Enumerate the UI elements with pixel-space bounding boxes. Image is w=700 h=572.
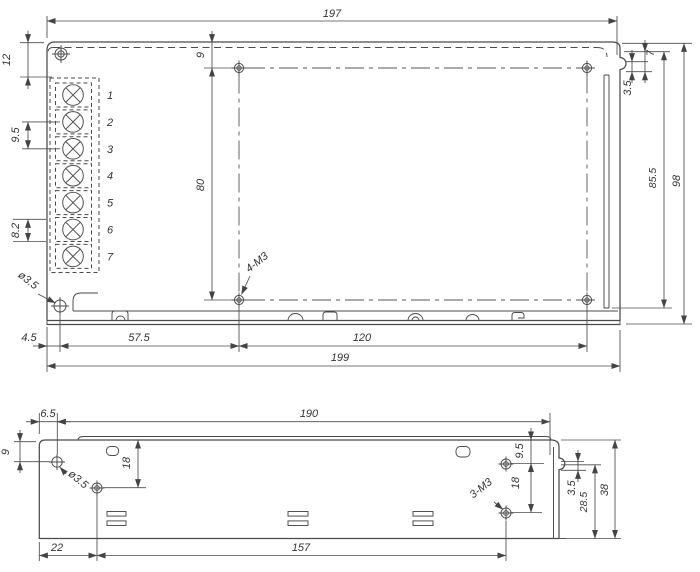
- dim-hole-dia: ø3.5: [15, 269, 55, 303]
- dim-label-8point2: 8.2: [10, 223, 22, 238]
- dim-4-m3: 4-M3: [242, 250, 272, 295]
- dim-9point5: 9.5: [10, 122, 60, 149]
- dim-9: 9: [195, 31, 212, 68]
- side-hole-m3: [499, 457, 514, 472]
- terminal-6: [56, 218, 92, 242]
- dim-12: 12: [1, 31, 52, 89]
- terminal-7: [56, 244, 92, 268]
- terminal-4: [56, 164, 92, 188]
- cover-dashed-line: [48, 48, 607, 58]
- dim-label-28point5: 28.5: [578, 492, 590, 514]
- dim-label-18-left: 18: [121, 456, 133, 469]
- dim-190: 190: [57, 408, 550, 455]
- dim-3-m3: 3-M3: [468, 476, 503, 510]
- dim-label-9point5-side: 9.5: [514, 442, 526, 458]
- dim-label-9-side: 9: [0, 449, 12, 455]
- vent-slots: [107, 512, 433, 526]
- terminal-number-3: 3: [107, 144, 114, 156]
- dim-label-4-m3: 4-M3: [244, 250, 272, 275]
- mounting-hole-m3: [232, 61, 247, 76]
- terminal-number-2: 2: [106, 117, 113, 129]
- dim-label-18-right: 18: [510, 476, 522, 489]
- dim-9-side: 9: [0, 430, 50, 473]
- dim-9point5-side: 9.5: [511, 428, 544, 475]
- dim-label-4point5: 4.5: [21, 332, 37, 344]
- dim-label-85point5: 85.5: [647, 168, 659, 189]
- terminal-numbers: 1 2 3 4 5 6 7: [106, 90, 114, 263]
- dim-label-3point5-top: 3.5: [622, 79, 634, 95]
- dim-label-98: 98: [671, 174, 683, 187]
- top-view: 1 2 3 4 5 6 7: [1, 8, 692, 372]
- dim-6point5: 6.5: [26, 408, 71, 454]
- dim-label-190: 190: [300, 408, 319, 420]
- dim-label-3-m3: 3-M3: [468, 476, 496, 501]
- technical-drawing-page: 1 2 3 4 5 6 7: [0, 0, 700, 572]
- dim-label-7: 7: [645, 49, 657, 56]
- mounting-hole-m3: [580, 293, 595, 308]
- terminal-number-4: 4: [107, 171, 113, 183]
- terminal-1: [56, 83, 92, 107]
- dim-80: 80: [195, 68, 232, 300]
- dim-3point5-top: 3.5: [622, 50, 634, 96]
- mounting-hole-m3: [232, 293, 247, 308]
- dim-label-12: 12: [1, 54, 13, 66]
- mounting-hole-m3: [580, 61, 595, 76]
- enclosure-outline: [47, 42, 626, 325]
- dim-label-hole-dia: ø3.5: [15, 269, 40, 293]
- dim-4point5: 4.5: [21, 313, 60, 372]
- dim-label-6point5: 6.5: [40, 408, 56, 420]
- dim-57point5: 57.5: [60, 307, 239, 352]
- dim-38: 38: [599, 440, 615, 539]
- terminal-number-7: 7: [107, 251, 114, 263]
- dim-label-197: 197: [323, 8, 342, 20]
- dim-85point5: 85.5: [647, 52, 664, 308]
- dim-22: 22: [39, 494, 97, 561]
- dim-label-38: 38: [599, 483, 611, 496]
- dim-98: 98: [671, 43, 684, 324]
- dim-label-120: 120: [353, 332, 372, 344]
- dim-label-hole-dia-side: ø3.5: [66, 468, 91, 492]
- terminal-2: [56, 110, 92, 134]
- dim-18-left: 18: [103, 440, 146, 488]
- side-hole-3point5: [49, 454, 65, 470]
- terminal-5: [56, 191, 92, 215]
- dim-label-3point5-side: 3.5: [566, 479, 578, 495]
- terminal-number-5: 5: [107, 198, 114, 210]
- dim-8point2: 8.2: [10, 219, 46, 241]
- terminal-number-1: 1: [107, 90, 113, 102]
- terminal-number-6: 6: [107, 225, 114, 237]
- corner-hole-bottom-left: [51, 297, 69, 315]
- enclosure-drawing: 1 2 3 4 5 6 7: [0, 0, 700, 572]
- dim-28point5: 28.5: [578, 465, 595, 539]
- terminal-3: [56, 137, 92, 161]
- dim-label-22: 22: [50, 542, 63, 554]
- dim-157: 157: [97, 521, 506, 561]
- dim-label-199: 199: [331, 352, 349, 364]
- dim-label-9point5: 9.5: [10, 126, 22, 142]
- side-hole-m3: [90, 481, 105, 496]
- terminal-block: [50, 78, 99, 273]
- side-view: 6.5 190 9 18 ø3.5 22: [0, 408, 621, 561]
- dim-label-80: 80: [195, 178, 207, 191]
- dim-3point5-side: 3.5: [566, 450, 578, 496]
- dim-18-right: 18: [510, 464, 542, 513]
- centerlines: [239, 68, 600, 300]
- dim-label-57point5: 57.5: [128, 332, 150, 344]
- dim-hole-dia-side: ø3.5: [60, 467, 91, 492]
- dim-label-157: 157: [292, 542, 311, 554]
- dim-label-9: 9: [195, 52, 207, 58]
